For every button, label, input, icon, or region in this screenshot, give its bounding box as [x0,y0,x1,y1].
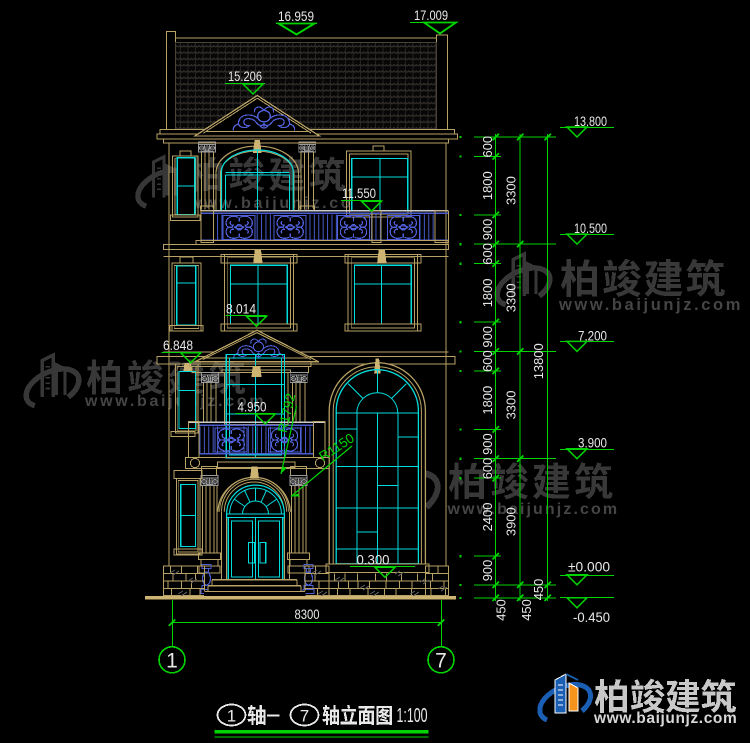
svg-text:11.550: 11.550 [342,185,376,201]
svg-text:1800: 1800 [480,386,495,415]
svg-text:600: 600 [480,243,495,265]
svg-text:www.baijunjz.com: www.baijunjz.com [558,296,743,314]
svg-text:450: 450 [494,599,509,621]
svg-text:1:100: 1:100 [397,704,428,727]
svg-text:3300: 3300 [504,283,519,312]
svg-text:1: 1 [166,650,178,673]
svg-text:www.baijunjz.com: www.baijunjz.com [593,710,737,727]
svg-text:600: 600 [480,136,495,158]
svg-text:8300: 8300 [295,606,320,622]
svg-text:2400: 2400 [480,503,495,532]
svg-text:900: 900 [480,433,495,455]
svg-text:7: 7 [435,650,447,673]
svg-text:900: 900 [480,560,495,582]
svg-text:6.848: 6.848 [163,337,193,353]
svg-text:13.800: 13.800 [574,113,607,129]
svg-text:16.959: 16.959 [278,8,314,24]
svg-text:600: 600 [480,458,495,480]
svg-text:7.200: 7.200 [578,327,607,343]
svg-text:1: 1 [227,707,236,726]
svg-text:3900: 3900 [504,507,519,536]
svg-text:0.300: 0.300 [357,552,390,568]
svg-text:8.014: 8.014 [226,301,256,317]
svg-text:13800: 13800 [531,343,546,379]
svg-text:900: 900 [480,326,495,348]
svg-text:450: 450 [531,579,546,601]
svg-text:10.500: 10.500 [574,220,607,236]
svg-text:±0.000: ±0.000 [568,559,610,575]
svg-text:900: 900 [480,219,495,241]
svg-text:3300: 3300 [504,176,519,205]
svg-text:-0.450: -0.450 [573,609,610,625]
svg-text:600: 600 [480,350,495,372]
svg-text:3300: 3300 [504,391,519,420]
svg-text:7: 7 [300,707,309,726]
svg-text:17.009: 17.009 [414,7,448,23]
svg-text:www.baijunjz.com: www.baijunjz.com [447,501,620,518]
svg-text:3.900: 3.900 [578,435,607,451]
svg-text:450: 450 [519,599,534,621]
svg-text:1800: 1800 [480,279,495,308]
svg-text:15.206: 15.206 [228,68,262,84]
svg-text:4.950: 4.950 [238,398,267,414]
svg-text:1800: 1800 [480,171,495,200]
